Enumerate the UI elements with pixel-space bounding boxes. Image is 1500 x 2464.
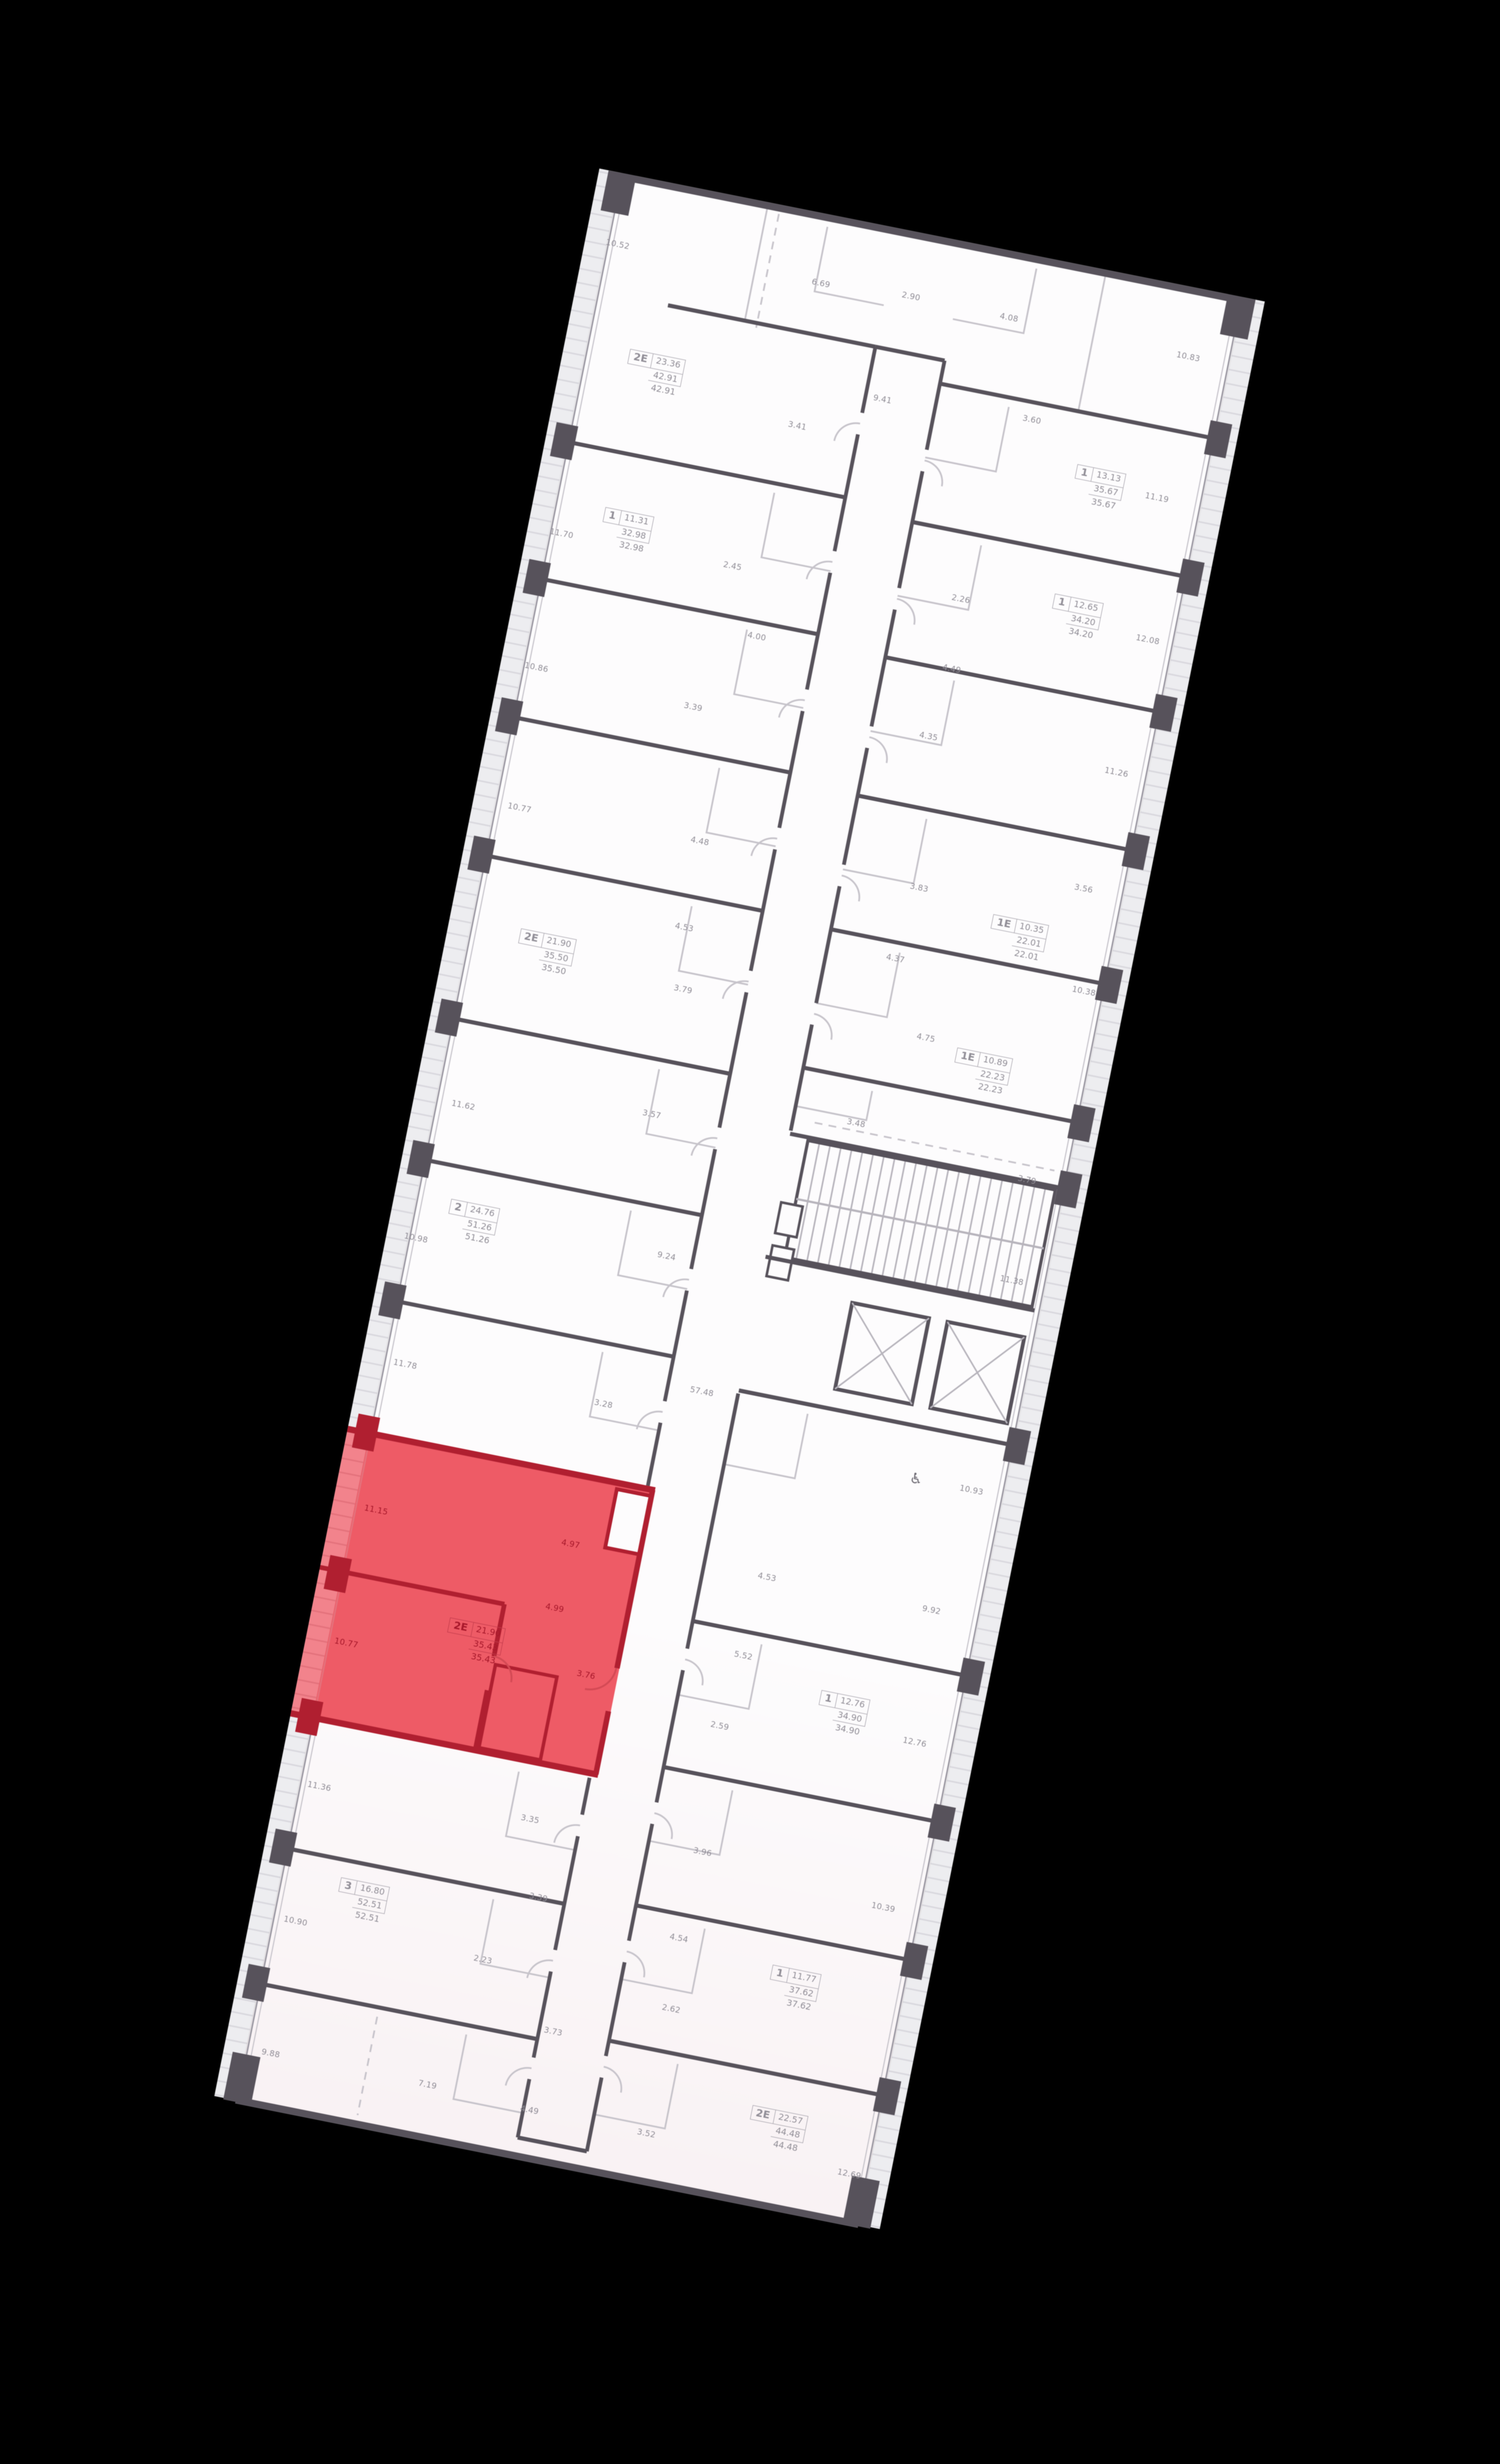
wheelchair-icon: ♿ bbox=[908, 1471, 924, 1487]
page-background: { "scene": { "kind": "residential-floor-… bbox=[0, 0, 1500, 2464]
floorplan: 2Е 23.36 42.91 42.91 1 11.31 32.98 32.98… bbox=[208, 156, 1268, 2261]
labels-layer: 2Е 23.36 42.91 42.91 1 11.31 32.98 32.98… bbox=[208, 156, 1268, 2261]
